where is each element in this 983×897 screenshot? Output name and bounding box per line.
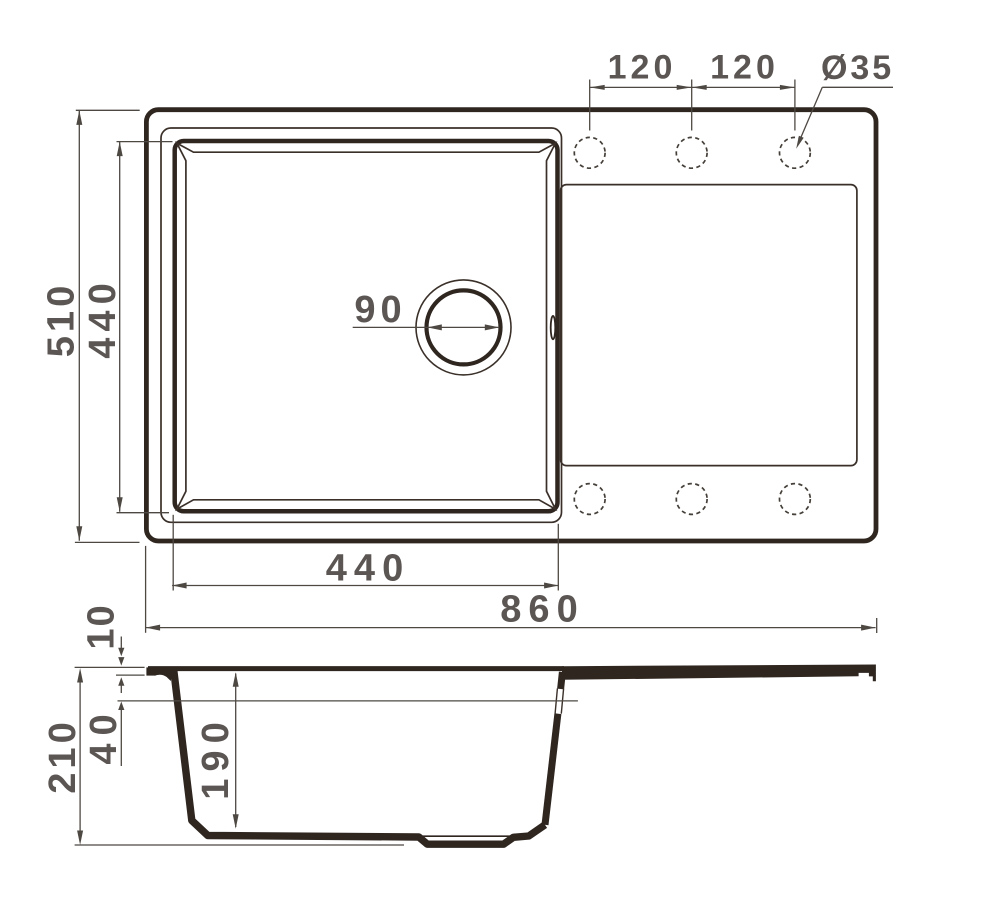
svg-text:120: 120 [608,48,677,86]
svg-text:190: 190 [195,715,237,799]
svg-text:120: 120 [710,48,779,86]
svg-text:510: 510 [41,282,83,357]
svg-text:210: 210 [42,718,84,793]
svg-text:440: 440 [326,548,410,590]
svg-text:40: 40 [83,706,125,764]
svg-text:860: 860 [500,588,584,630]
svg-text:90: 90 [354,289,406,331]
svg-text:440: 440 [82,277,124,358]
svg-text:Ø35: Ø35 [821,49,894,87]
svg-text:10: 10 [81,603,123,649]
